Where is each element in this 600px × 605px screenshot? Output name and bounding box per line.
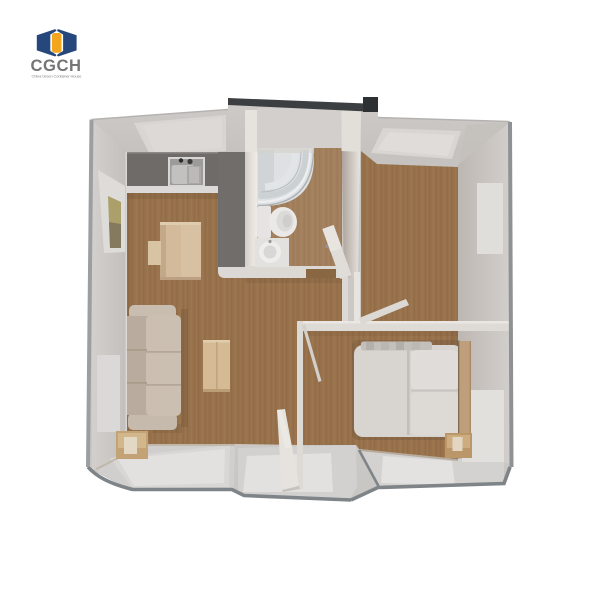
svg-text:CGCH: CGCH xyxy=(31,56,82,75)
svg-text:China Green Container House: China Green Container House xyxy=(32,74,83,79)
